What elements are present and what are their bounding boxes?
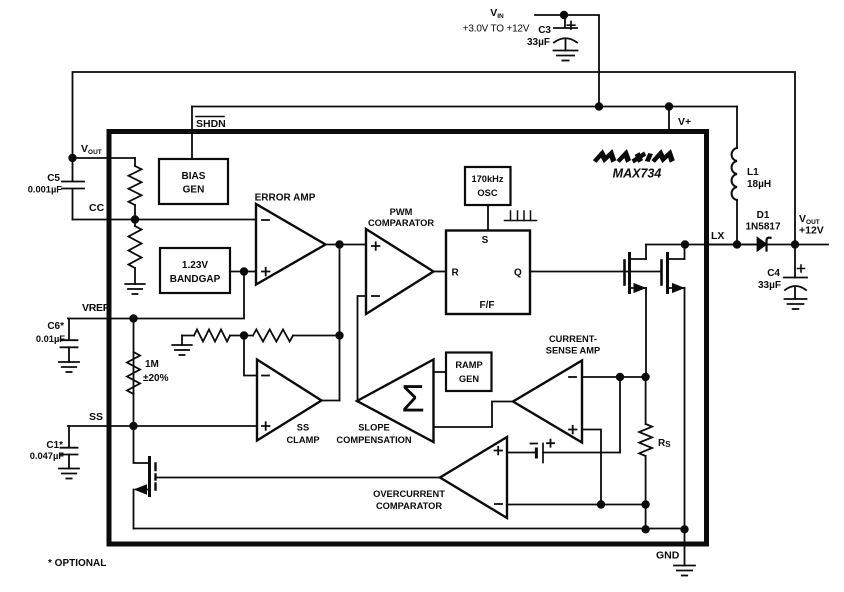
svg-text:170kHz: 170kHz (471, 174, 503, 184)
svg-text:ERROR AMP: ERROR AMP (255, 193, 316, 204)
svg-text:C4: C4 (767, 268, 780, 279)
svg-text:0.01µF: 0.01µF (36, 334, 65, 344)
svg-text:LX: LX (711, 230, 724, 242)
svg-text:+12V: +12V (799, 225, 824, 237)
svg-text:1N5817: 1N5817 (745, 222, 780, 233)
svg-text:COMPARATOR: COMPARATOR (368, 218, 434, 228)
svg-text:F/F: F/F (480, 300, 495, 311)
svg-text:GEN: GEN (183, 185, 205, 196)
svg-text:* OPTIONAL: * OPTIONAL (48, 558, 106, 569)
svg-text:V+: V+ (678, 116, 691, 128)
svg-text:33µF: 33µF (527, 37, 550, 48)
svg-text:Σ: Σ (401, 379, 425, 421)
svg-text:SENSE AMP: SENSE AMP (546, 346, 600, 356)
svg-text:0.001µF: 0.001µF (28, 185, 63, 195)
svg-text:PWM: PWM (390, 207, 413, 217)
svg-text:L1: L1 (747, 167, 759, 178)
svg-text:C6*: C6* (47, 321, 64, 332)
svg-text:SS: SS (297, 423, 309, 433)
svg-text:GND: GND (656, 550, 680, 562)
svg-text:SLOPE: SLOPE (358, 423, 390, 433)
svg-text:BANDGAP: BANDGAP (170, 274, 221, 285)
svg-text:18µH: 18µH (747, 179, 771, 190)
svg-text:33µF: 33µF (758, 280, 781, 291)
svg-text:CLAMP: CLAMP (286, 435, 319, 445)
svg-text:S: S (482, 235, 489, 246)
svg-text:CURRENT-: CURRENT- (549, 334, 597, 344)
svg-text:C1*: C1* (46, 440, 63, 451)
svg-text:COMPENSATION: COMPENSATION (336, 435, 412, 445)
svg-text:GEN: GEN (459, 374, 479, 384)
svg-text:RS: RS (658, 438, 671, 449)
svg-text:C5: C5 (47, 173, 60, 184)
svg-text:1M: 1M (145, 359, 159, 370)
svg-text:D1: D1 (757, 210, 770, 221)
svg-text:SHDN: SHDN (196, 118, 226, 130)
svg-text:OSC: OSC (477, 188, 497, 198)
svg-text:COMPARATOR: COMPARATOR (376, 501, 442, 511)
svg-text:R: R (452, 268, 460, 279)
svg-text:BIAS: BIAS (182, 171, 206, 182)
svg-text:SS: SS (89, 411, 103, 423)
svg-text:MAX734: MAX734 (613, 167, 662, 181)
svg-text:VREF: VREF (82, 302, 110, 314)
svg-text:C3: C3 (538, 25, 551, 36)
svg-text:VOUT: VOUT (81, 143, 102, 156)
svg-text:±20%: ±20% (143, 373, 169, 384)
svg-text:0.047µF: 0.047µF (30, 451, 65, 461)
svg-text:CC: CC (89, 202, 105, 214)
svg-text:1.23V: 1.23V (182, 260, 208, 271)
svg-text:+3.0V TO +12V: +3.0V TO +12V (463, 24, 530, 35)
svg-text:VIN: VIN (490, 7, 504, 20)
svg-text:OVERCURRENT: OVERCURRENT (373, 489, 445, 499)
svg-text:RAMP: RAMP (455, 360, 482, 370)
svg-text:Q: Q (514, 268, 522, 279)
